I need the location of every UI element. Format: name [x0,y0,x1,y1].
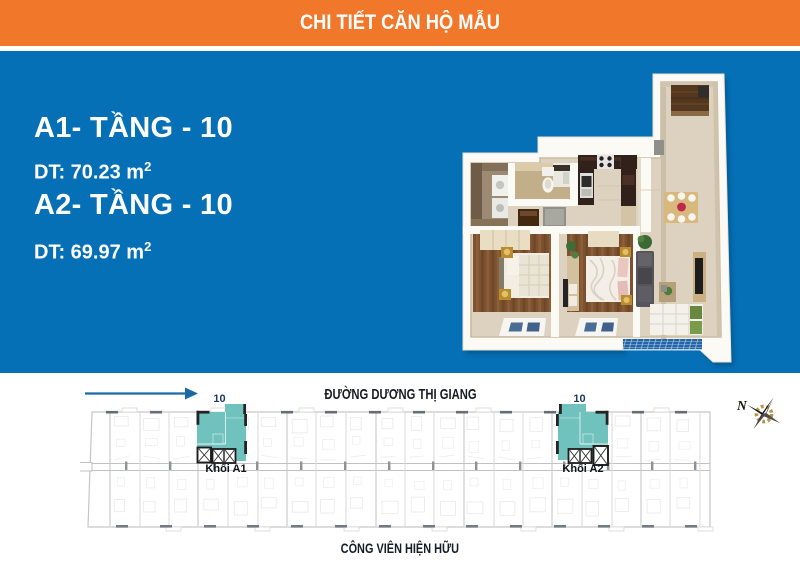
svg-text:N: N [736,398,748,413]
